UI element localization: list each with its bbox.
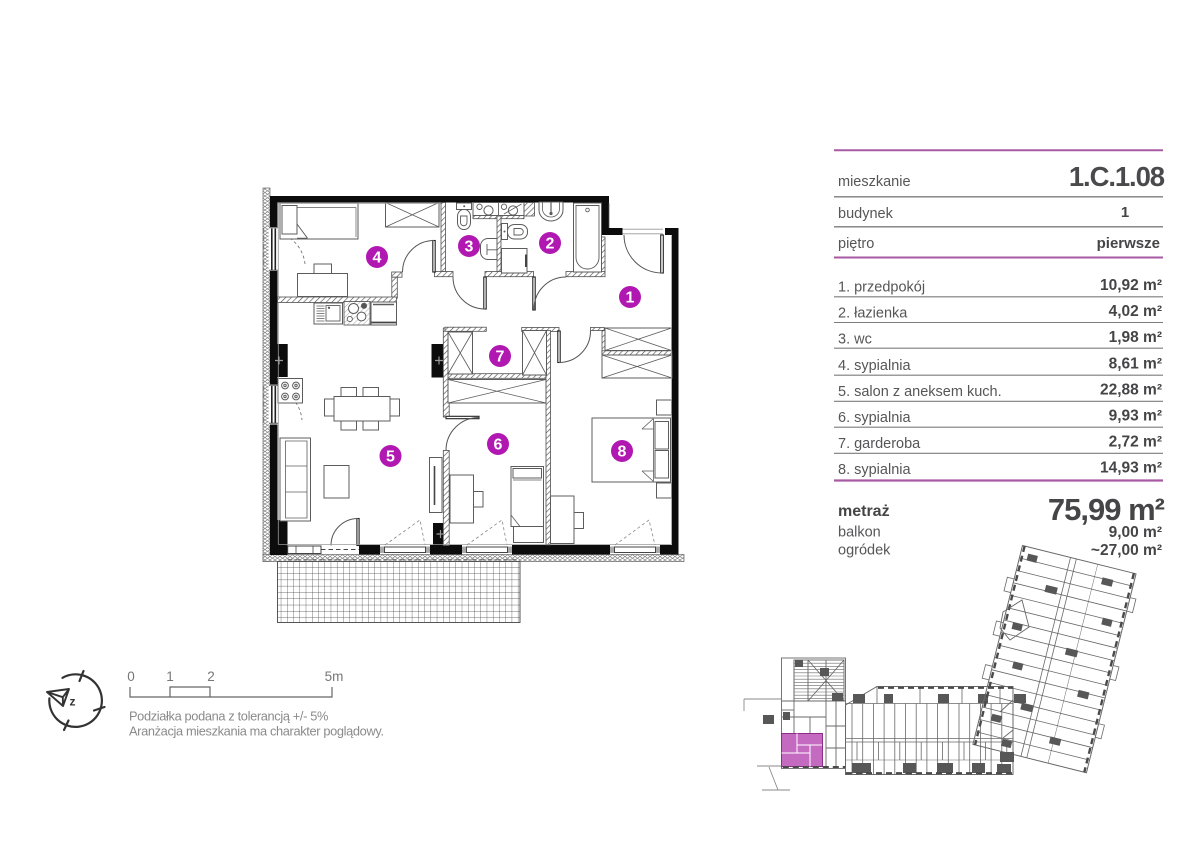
- svg-text:1: 1: [626, 290, 635, 307]
- svg-text:22,88 m²: 22,88 m²: [1100, 381, 1162, 398]
- svg-text:mieszkanie: mieszkanie: [838, 174, 911, 190]
- svg-text:4. sypialnia: 4. sypialnia: [838, 358, 911, 374]
- svg-text:2: 2: [546, 236, 555, 253]
- svg-text:balkon: balkon: [838, 525, 881, 541]
- svg-text:4: 4: [373, 250, 382, 267]
- svg-text:9,93 m²: 9,93 m²: [1109, 408, 1162, 425]
- svg-text:1: 1: [166, 669, 174, 684]
- svg-text:piętro: piętro: [838, 236, 874, 252]
- svg-text:8,61 m²: 8,61 m²: [1109, 355, 1162, 372]
- svg-text:2. łazienka: 2. łazienka: [838, 306, 908, 322]
- svg-text:1.C.1.08: 1.C.1.08: [1069, 161, 1165, 192]
- svg-text:1. przedpokój: 1. przedpokój: [838, 280, 925, 296]
- svg-text:metraż: metraż: [838, 503, 890, 520]
- svg-text:1: 1: [1121, 204, 1129, 221]
- svg-text:3. wc: 3. wc: [838, 332, 872, 348]
- svg-text:1,98 m²: 1,98 m²: [1109, 329, 1162, 346]
- svg-text:8. sypialnia: 8. sypialnia: [838, 462, 911, 478]
- svg-text:9,00 m²: 9,00 m²: [1109, 524, 1162, 541]
- svg-text:14,93 m²: 14,93 m²: [1100, 460, 1162, 477]
- svg-text:pierwsze: pierwsze: [1097, 235, 1160, 252]
- svg-text:5: 5: [386, 449, 395, 466]
- svg-text:Podziałka podana z tolerancją: Podziałka podana z tolerancją +/- 5%: [129, 709, 328, 724]
- svg-text:2: 2: [207, 669, 215, 684]
- svg-text:5m: 5m: [325, 669, 344, 684]
- svg-text:ogródek: ogródek: [838, 543, 891, 559]
- svg-text:6: 6: [494, 437, 503, 454]
- svg-text:8: 8: [618, 444, 627, 461]
- svg-text:~27,00 m²: ~27,00 m²: [1091, 542, 1162, 559]
- svg-text:10,92 m²: 10,92 m²: [1100, 277, 1162, 294]
- svg-text:3: 3: [465, 239, 474, 256]
- svg-text:7: 7: [496, 349, 505, 366]
- svg-text:7. garderoba: 7. garderoba: [838, 436, 921, 452]
- svg-text:5. salon z aneksem kuch.: 5. salon z aneksem kuch.: [838, 384, 1002, 400]
- svg-text:2,72 m²: 2,72 m²: [1109, 434, 1162, 451]
- svg-text:0: 0: [127, 669, 135, 684]
- svg-text:6. sypialnia: 6. sypialnia: [838, 410, 911, 426]
- svg-text:z: z: [70, 695, 76, 709]
- svg-text:Aranżacja mieszkania ma charak: Aranżacja mieszkania ma charakter pogląd…: [129, 724, 384, 739]
- svg-text:75,99 m²: 75,99 m²: [1048, 492, 1165, 527]
- svg-text:4,02 m²: 4,02 m²: [1109, 303, 1162, 320]
- svg-text:budynek: budynek: [838, 206, 894, 222]
